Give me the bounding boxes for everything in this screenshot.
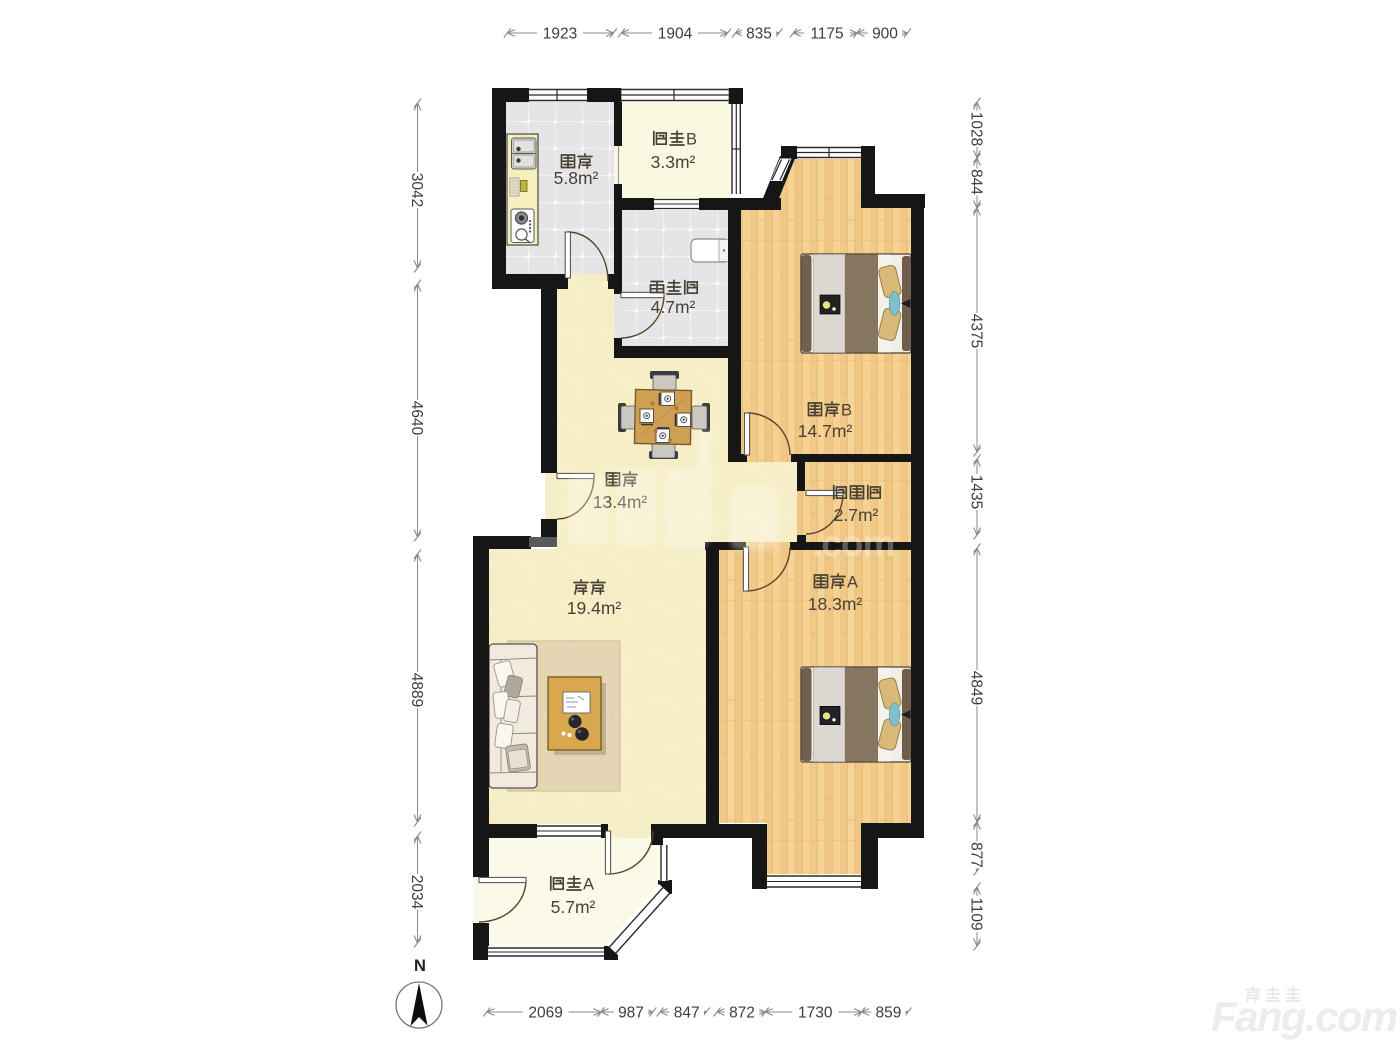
svg-text:2034: 2034 [408,875,425,910]
svg-text:B: B [686,131,697,149]
svg-text:3.3m²: 3.3m² [651,152,696,172]
svg-text:18.3m²: 18.3m² [808,594,863,614]
svg-text:859: 859 [875,1005,901,1022]
svg-text:A: A [847,574,858,592]
svg-text:B: B [841,402,852,420]
svg-text:835: 835 [746,26,772,43]
svg-text:877: 877 [968,842,985,868]
svg-text:4375: 4375 [968,314,985,348]
svg-text:1109: 1109 [968,897,985,930]
svg-text:844: 844 [968,169,985,195]
svg-text:A: A [583,876,594,894]
svg-text:987: 987 [618,1005,644,1022]
svg-text:1923: 1923 [543,26,577,43]
svg-text:2.7m²: 2.7m² [834,505,879,525]
svg-text:847: 847 [674,1005,700,1022]
svg-text:872: 872 [729,1005,755,1022]
svg-text:4.7m²: 4.7m² [651,297,696,317]
svg-text:5.8m²: 5.8m² [554,168,599,188]
svg-text:1435: 1435 [968,475,985,509]
svg-text:1904: 1904 [658,26,693,43]
svg-text:1028: 1028 [968,112,985,146]
svg-text:Fang.com: Fang.com [1211,993,1397,1040]
svg-text:3042: 3042 [408,173,425,207]
svg-text:4640: 4640 [408,401,425,436]
svg-text:1175: 1175 [810,26,843,43]
svg-text:1730: 1730 [798,1005,833,1022]
svg-text:5.7m²: 5.7m² [551,897,596,917]
svg-text:4889: 4889 [408,673,425,707]
svg-text:4849: 4849 [968,671,985,705]
svg-text:N: N [414,957,426,975]
svg-text:19.4m²: 19.4m² [567,598,622,618]
svg-text:.com: .com [812,523,894,564]
svg-text:2069: 2069 [528,1005,562,1022]
svg-text:14.7m²: 14.7m² [798,421,853,441]
svg-text:900: 900 [872,26,898,43]
